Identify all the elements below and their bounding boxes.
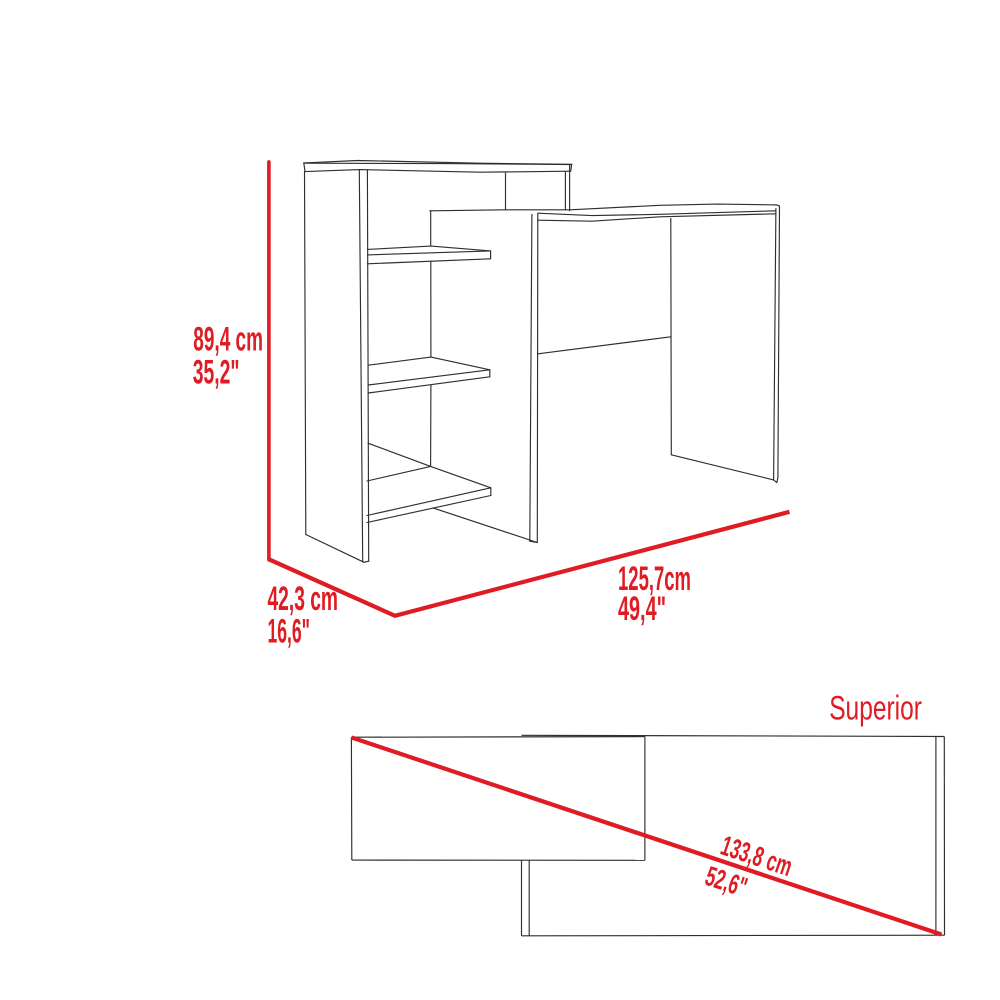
svg-text:49,4": 49,4" bbox=[618, 590, 666, 628]
svg-text:35,2": 35,2" bbox=[193, 354, 240, 392]
svg-text:Superior: Superior bbox=[829, 690, 922, 728]
svg-text:16,6": 16,6" bbox=[268, 613, 311, 651]
